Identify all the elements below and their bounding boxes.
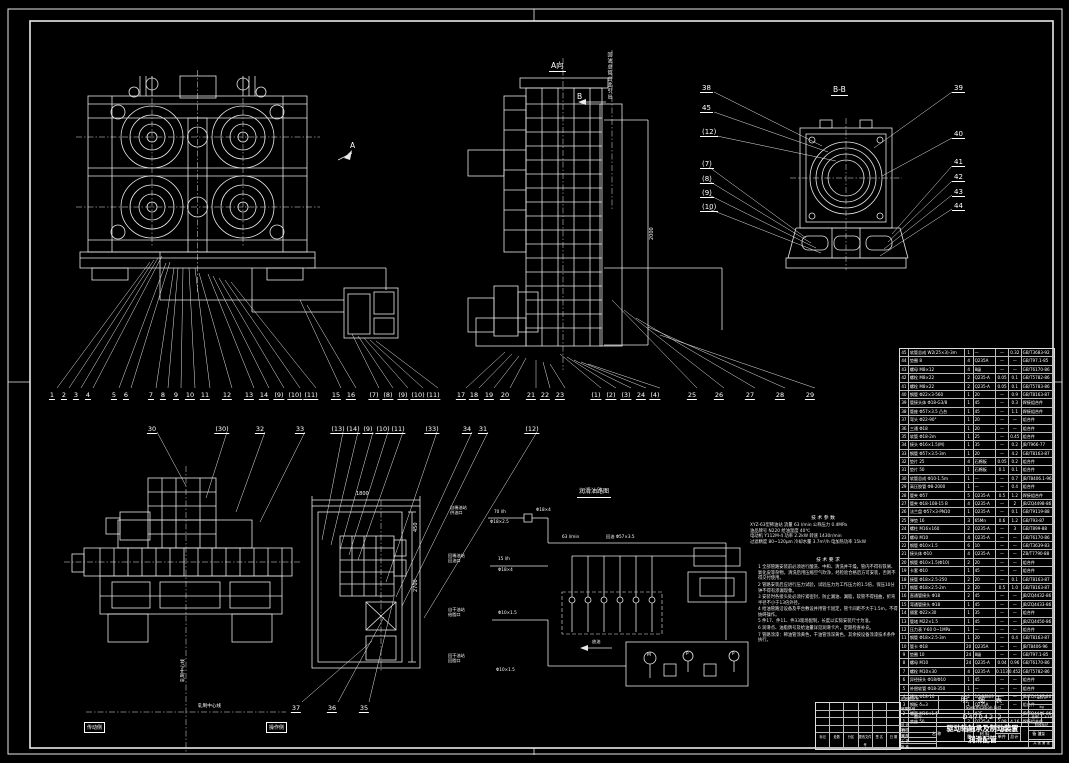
parts-cell: 5	[965, 492, 974, 499]
parts-cell: 10	[974, 542, 997, 549]
parts-cell: 37	[900, 416, 909, 423]
balloon-row1-24: (11)	[425, 391, 440, 400]
parts-cell: 2	[965, 592, 974, 599]
parts-cell: 26	[900, 508, 909, 515]
section-b-mark: B	[577, 93, 582, 101]
balloon-row2-4: 33	[295, 425, 305, 434]
parts-cell: —	[996, 567, 1009, 574]
parts-cell: 1	[965, 450, 974, 457]
pump-m-label: M	[647, 654, 651, 659]
balloon-row1-16: (10)	[287, 391, 302, 400]
parts-cell: 高压胶管 Φ8-2000	[909, 483, 965, 490]
tech-note-item: 7 管路涂漆：稀油管涂黄色，干油管涂深黄色，其余按设备涂漆技术条件执行。	[758, 633, 898, 644]
balloon-row1-21: (8)	[382, 391, 393, 400]
parts-cell: —	[996, 391, 1009, 398]
title-block: 设 计制 图审 核工 艺批 准 驱动轴轴承及制动装置 润滑配管 阶段标记 重量 …	[899, 722, 1055, 749]
parts-cell: GB/T3683-92	[1022, 349, 1054, 356]
parts-cell: 软管总成 Φ10-1.5m	[909, 475, 965, 482]
parts-cell: 43	[900, 366, 909, 373]
parts-cell: 45	[900, 349, 909, 356]
parts-cell: 0.4	[1009, 483, 1022, 490]
parts-cell: 钢管 Φ18×2.5-2m	[909, 584, 965, 591]
parts-cell: 20	[974, 576, 997, 583]
parts-cell: —	[1009, 601, 1022, 608]
parts-cell: 0.2	[1009, 458, 1022, 465]
parts-cell: 20	[974, 416, 997, 423]
parts-cell: Q235-A	[974, 383, 997, 390]
flow-label-f1: 70 l/h	[494, 510, 506, 515]
balloon-bottom-3: 35	[359, 704, 369, 713]
tech-params-title: 技 术 参 数	[750, 516, 896, 522]
parts-cell: 组合件	[1022, 559, 1054, 566]
balloon-row1-30: 22	[540, 391, 550, 400]
parts-row-7: 7螺栓 M10×304Q235-A0.1130.452GB/T5782-86	[900, 667, 1054, 675]
parts-cell: 钢管 Φ10×1.5	[909, 542, 965, 549]
parts-row-38: 38管座 Φ57×3.5 凸台145—1.1焊接组合件	[900, 407, 1054, 415]
parts-cell: 6	[965, 542, 974, 549]
balloon-bb_right-6: 44	[952, 202, 965, 211]
parts-cell: 12	[900, 626, 909, 633]
centerline-vertical-label: 轧制中心线	[181, 659, 186, 682]
tech-note-item: 1 全部管路安装前必须进行酸洗、中和、清洗并干燥，管内不得有铁屑、氧化皮等杂物，…	[758, 565, 898, 582]
parts-row-17: 17钢管 Φ18×2.5-2m2200.51.0GB/T8163-87	[900, 583, 1054, 591]
parts-cell: 13	[900, 618, 909, 625]
parts-cell: Q235A	[974, 643, 997, 650]
balloon-row1-20: (7)	[368, 391, 379, 400]
parts-cell: 接头 Φ16×1.5(M)	[909, 441, 965, 448]
parts-cell: —	[1009, 559, 1022, 566]
parts-cell: 4	[965, 534, 974, 541]
parts-row-35: 35软管 Φ18-2m125—0.45组合件	[900, 432, 1054, 440]
parts-cell: —	[996, 626, 1009, 633]
parts-cell: 焊接组合件	[1022, 408, 1054, 415]
balloon-bb_left-6: (9)	[700, 189, 714, 198]
parts-cell: 螺母 M8×12	[909, 366, 965, 373]
balloon-row1-37: 25	[687, 391, 697, 400]
parts-cell: 接头体 Φ10	[909, 550, 965, 557]
dim-tower-height: 2000	[650, 227, 656, 240]
parts-row-22: 22钢管 Φ10×1.5610——GB/T3639-83	[900, 541, 1054, 549]
parts-cell: 螺母 M10	[909, 534, 965, 541]
revision-label: 分区	[844, 733, 858, 749]
parts-cell: 17	[900, 584, 909, 591]
stage-weight-column: 阶段标记 重量 共 张 第 张	[1029, 722, 1054, 748]
parts-cell: —	[996, 550, 1009, 557]
parts-cell: 0.113	[996, 668, 1009, 675]
balloon-row1-33: (2)	[605, 391, 616, 400]
parts-row-34: 34接头 Φ16×1.5(M)135—0.2JB/T966-77	[900, 440, 1054, 448]
parts-cell: 组合件	[1022, 425, 1054, 432]
pipe-label-p3: 回油 Φ57×3.5	[606, 535, 635, 540]
parts-cell: 20	[974, 584, 997, 591]
parts-cell: 20	[974, 634, 997, 641]
parts-cell: —	[996, 651, 1009, 658]
parts-cell: 1	[965, 349, 974, 356]
parts-cell: 22	[900, 542, 909, 549]
view-a-title: A向	[549, 62, 566, 72]
parts-cell: JB/T8406.1-96	[1022, 475, 1054, 482]
parts-cell: 20	[974, 425, 997, 432]
revision-label: 处数	[830, 733, 844, 749]
parts-cell: 25	[974, 433, 997, 440]
balloon-row1-25: 17	[456, 391, 466, 400]
parts-cell: 20	[974, 391, 997, 398]
parts-cell: 1	[965, 626, 974, 633]
parts-row-13: 13管堵 M22×1.5145——JB/ZQ4450-86	[900, 617, 1054, 625]
parts-cell: 螺母 M10	[909, 659, 965, 666]
parts-cell: 32	[900, 458, 909, 465]
parts-cell: 45	[974, 399, 997, 406]
parts-cell: 1	[965, 685, 974, 692]
parts-cell: 20	[974, 450, 997, 457]
parts-cell: —	[996, 618, 1009, 625]
source-3-label: 自干油站给脂口	[448, 608, 465, 617]
balloon-row1-10: 10	[185, 391, 195, 400]
parts-cell: 垫圈 10	[909, 651, 965, 658]
balloon-row2-6: (14)	[345, 425, 360, 434]
tech-notes-title: 技 术 要 求	[758, 558, 898, 564]
parts-cell: —	[996, 676, 1009, 683]
parts-cell: GB/T97.1-85	[1022, 357, 1054, 364]
parts-cell: 软管 Φ18-2m	[909, 433, 965, 440]
balloon-row1-31: 23	[555, 391, 565, 400]
parts-cell: 20	[900, 559, 909, 566]
parts-cell: 25	[900, 517, 909, 524]
balloon-row1-14: 14	[259, 391, 269, 400]
parts-cell: GB/T5783-86	[1022, 383, 1054, 390]
pipe-label-p1: Φ18×2.5	[490, 520, 509, 525]
parts-cell: Q235-A	[974, 534, 997, 541]
parts-cell: 2	[965, 559, 974, 566]
parts-cell: 20	[965, 643, 974, 650]
balloon-row1-4: 4	[85, 391, 91, 400]
parts-row-16: 16直通管接头 Φ18245——JB/ZQ4432-86	[900, 591, 1054, 599]
parts-cell: 45	[974, 408, 997, 415]
parts-cell: 3	[965, 517, 974, 524]
parts-cell: 0.7	[1009, 475, 1022, 482]
balloon-row1-19: 16	[346, 391, 356, 400]
parts-cell: 管堵 M22×1.5	[909, 618, 965, 625]
parts-cell: GB/T8163-87	[1022, 584, 1054, 591]
parts-cell: 4	[965, 550, 974, 557]
drive-side-box: 传动侧	[84, 722, 105, 733]
parts-row-12: 12压力表 Y-60 0~1MPa1———组合件	[900, 625, 1054, 633]
balloon-bb_right-4: 42	[952, 173, 965, 182]
parts-cell: 16	[900, 592, 909, 599]
balloon-row1-13: 13	[244, 391, 254, 400]
tech-params-block: 技 术 参 数 XYZ-63型稀油站 流量 63 l/min 公称压力 0.4M…	[750, 516, 896, 546]
parts-row-30: 30软管总成 Φ10-1.5m1——0.7JB/T8406.1-96	[900, 474, 1054, 482]
revision-label: 更改文件号	[859, 733, 873, 749]
parts-cell: 45	[974, 567, 997, 574]
parts-cell: —	[1009, 651, 1022, 658]
parts-row-18: 18接管 Φ18×2.5-250220—0.1GB/T8163-87	[900, 575, 1054, 583]
parts-cell: 24	[965, 659, 974, 666]
parts-cell: 0.1	[996, 466, 1009, 473]
parts-cell: —	[1009, 626, 1022, 633]
parts-cell: —	[974, 626, 997, 633]
parts-cell: 压力表 Y-60 0~1MPa	[909, 626, 965, 633]
parts-cell: 24	[900, 525, 909, 532]
parts-cell: 组合件	[1022, 626, 1054, 633]
parts-cell: 1	[965, 601, 974, 608]
parts-cell: GB/T899-88	[1022, 525, 1054, 532]
parts-row-31: 31垫片 501石棉板0.10.1组合件	[900, 465, 1054, 473]
parts-row-9: 9垫圈 10248级——GB/T97.1-85	[900, 650, 1054, 658]
parts-cell: 钢管 Φ57×3.5-3m	[909, 450, 965, 457]
revision-row	[816, 710, 900, 718]
vertical-pipe-note: 回油总管由此引出	[606, 52, 612, 100]
parts-cell: 1.2	[1009, 517, 1022, 524]
dim-panel-height: 2700	[414, 579, 420, 592]
balloon-bb_left-7: (10)	[700, 203, 718, 212]
revision-row: 标记处数分区更改文件号签 名日 期	[816, 732, 900, 749]
parts-cell: 1	[965, 466, 974, 473]
parts-cell: 2	[965, 525, 974, 532]
parts-cell: 1	[965, 618, 974, 625]
parts-cell: 65Mn	[974, 517, 997, 524]
parts-cell: GB/T3639-83	[1022, 542, 1054, 549]
pipe-label-p5: Φ10×1.5	[498, 611, 517, 616]
parts-cell: 组合件	[1022, 433, 1054, 440]
parts-cell: —	[1009, 609, 1022, 616]
parts-cell: 石棉板	[974, 458, 997, 465]
parts-row-8: 8螺母 M1024Q235-A0.040.96GB/T6170-86	[900, 658, 1054, 666]
parts-cell: 9	[900, 651, 909, 658]
balloon-bb_left-4: (7)	[700, 160, 714, 169]
parts-cell: 45	[974, 601, 997, 608]
parts-cell: GB/T5782-86	[1022, 374, 1054, 381]
parts-cell: —	[1009, 534, 1022, 541]
parts-cell: Q235-A	[974, 525, 997, 532]
parts-cell: GB/T6170-86	[1022, 366, 1054, 373]
parts-cell: —	[1009, 550, 1022, 557]
balloon-row1-22: (9)	[397, 391, 408, 400]
parts-cell: 1	[965, 567, 974, 574]
balloon-bb_left-2: 45	[700, 104, 713, 113]
parts-cell: Q235-A	[974, 668, 997, 675]
parts-row-33: 33钢管 Φ57×3.5-3m120—4.2GB/T8163-87	[900, 449, 1054, 457]
parts-cell: 1	[965, 399, 974, 406]
parts-cell: GB/T93-87	[1022, 517, 1054, 524]
parts-cell: 1	[965, 676, 974, 683]
parts-cell: —	[1009, 592, 1022, 599]
parts-cell: JB/ZQ4433-86	[1022, 601, 1054, 608]
parts-cell: 45	[974, 592, 997, 599]
parts-cell: 2	[965, 374, 974, 381]
parts-cell: 24	[965, 651, 974, 658]
parts-cell: 0.05	[996, 374, 1009, 381]
tech-note-item: 4 给油管路沿设备及平台敷设并用管卡固定，管卡间距不大于1.5m，不得妨碍操作。	[758, 607, 898, 618]
parts-cell: 3	[1009, 525, 1022, 532]
parts-cell: 0.1	[1009, 466, 1022, 473]
parts-row-43: 43螺母 M8×1248级——GB/T6170-86	[900, 365, 1054, 373]
parts-cell: —	[996, 433, 1009, 440]
parts-cell: —	[1009, 425, 1022, 432]
balloon-row1-40: 28	[775, 391, 785, 400]
parts-cell: 4.2	[1009, 450, 1022, 457]
balloon-row2-7: (9)	[362, 425, 373, 434]
parts-cell: —	[996, 508, 1009, 515]
parts-cell: 27	[900, 500, 909, 507]
balloon-row1-41: 29	[805, 391, 815, 400]
parts-cell: 组合件	[1022, 416, 1054, 423]
parts-cell: 40	[900, 391, 909, 398]
source-1-label: 自稀油站供油口	[450, 506, 467, 515]
drawing-title: 驱动轴轴承及制动装置 润滑配管	[937, 722, 1029, 748]
parts-cell: GB/T8163-87	[1022, 391, 1054, 398]
balloon-bb_left-3: (12)	[700, 128, 718, 137]
revision-label: 日 期	[887, 733, 900, 749]
parts-cell: 弯通管接头 Φ18	[909, 601, 965, 608]
parts-cell: 10	[900, 643, 909, 650]
parts-cell: GB/T6170-86	[1022, 659, 1054, 666]
parts-cell: —	[996, 483, 1009, 490]
parts-cell: 4	[965, 668, 974, 675]
parts-cell: 42	[900, 374, 909, 381]
balloon-row1-39: 27	[745, 391, 755, 400]
schematic-title: 润滑油路图	[577, 489, 611, 498]
parts-cell: Q235-A	[974, 508, 997, 515]
pipe-label-p6: Φ10×1.5	[496, 668, 515, 673]
parts-cell: —	[996, 425, 1009, 432]
parts-cell: 法兰盘 Φ57×3-PN10	[909, 508, 965, 515]
parts-cell: 弹垫 16	[909, 517, 965, 524]
parts-cell: —	[974, 349, 997, 356]
parts-row-24: 24螺柱 M16×1602Q235-A—3GB/T899-88	[900, 524, 1054, 532]
parts-cell: 2	[965, 584, 974, 591]
balloon-row1-18: 15	[331, 391, 341, 400]
balloon-row1-12: 12	[222, 391, 232, 400]
parts-row-5: 5补偿软管 Φ18-3501———组合件	[900, 684, 1054, 692]
balloon-row2-13: (12)	[524, 425, 539, 434]
parts-row-25: 25弹垫 16365Mn0.61.2GB/T93-87	[900, 516, 1054, 524]
parts-cell: JB/T966-77	[1022, 441, 1054, 448]
parts-cell: 1	[965, 609, 974, 616]
parts-cell: JB/ZQ4450-86	[1022, 618, 1054, 625]
parts-cell: —	[1009, 676, 1022, 683]
parts-cell: 35	[974, 441, 997, 448]
parts-cell: 15	[900, 601, 909, 608]
tech-param-line: 过滤精度 80~120μm 冷却水量 3.7m³/h 电加热功率 15kW	[750, 540, 896, 546]
parts-row-27: 27管夹 Φ18-108-15 B4Q235-A—2JB/ZQ4498-86	[900, 499, 1054, 507]
parts-cell: 2	[1009, 500, 1022, 507]
parts-list-table: 45软管总成 W2(25×3)-3m1——0.32GB/T3683-9244垫圈…	[899, 348, 1055, 742]
balloon-row1-27: 19	[484, 391, 494, 400]
parts-cell: —	[996, 349, 1009, 356]
flow-label-f3: 15 l/h	[498, 557, 510, 562]
parts-cell: 三通 Φ18	[909, 425, 965, 432]
parts-cell: 0.1	[1009, 383, 1022, 390]
parts-cell: 弯头 Φ22-90°	[909, 416, 965, 423]
balloon-row1-8: 8	[160, 391, 166, 400]
tech-note-item: 6 润滑点、油脂牌号及给油量详见润滑卡片，定期检查补充。	[758, 626, 898, 632]
parts-cell: 焊接组合件	[1022, 492, 1054, 499]
balloon-bb_right-1: 39	[952, 84, 965, 93]
balloon-row1-5: 5	[111, 391, 117, 400]
parts-row-26: 26法兰盘 Φ57×3-PN101Q235-A—0.1GB/T9119-88	[900, 507, 1054, 515]
parts-cell: 36	[900, 425, 909, 432]
parts-cell: 0.4	[1009, 634, 1022, 641]
parts-cell: —	[996, 592, 1009, 599]
parts-cell: 补偿软管 Φ18-350	[909, 685, 965, 692]
parts-cell: 20	[974, 559, 997, 566]
parts-row-45: 45软管总成 W2(25×3)-3m1——0.32GB/T3683-92	[900, 349, 1054, 356]
revision-grid: 标记处数分区更改文件号签 名日 期	[815, 702, 901, 750]
parts-cell: 6	[900, 676, 909, 683]
parts-cell: 直通管接头 Φ18	[909, 592, 965, 599]
balloon-row2-10: (33)	[424, 425, 439, 434]
balloon-row1-6: 6	[123, 391, 129, 400]
parts-cell: GB/T8163-87	[1022, 450, 1054, 457]
parts-row-10: 10管卡 Φ1820Q235A——JB/T8406-96	[900, 642, 1054, 650]
parts-row-6: 6异径接头 Φ18/Φ10145——组合件	[900, 675, 1054, 683]
parts-cell: —	[1009, 366, 1022, 373]
parts-cell: Q235-A	[974, 492, 997, 499]
parts-cell: —	[996, 408, 1009, 415]
revision-row	[816, 725, 900, 733]
parts-row-29: 29高压胶管 Φ8-20001——0.4组合件	[900, 482, 1054, 490]
balloon-bottom-1: 37	[291, 704, 301, 713]
parts-cell: —	[996, 441, 1009, 448]
parts-cell: 钢管 Φ22×3-560	[909, 391, 965, 398]
parts-cell: —	[996, 500, 1009, 507]
parts-cell: 38	[900, 408, 909, 415]
parts-cell: 8	[900, 659, 909, 666]
parts-cell: 7	[900, 668, 909, 675]
parts-cell: 0.5	[996, 584, 1009, 591]
parts-cell: 垫片 50	[909, 466, 965, 473]
parts-cell: —	[996, 559, 1009, 566]
parts-cell: 1	[965, 391, 974, 398]
parts-cell: 0.45	[1009, 433, 1022, 440]
parts-cell: 8级	[974, 366, 997, 373]
parts-cell: 0.05	[996, 383, 1009, 390]
parts-cell: 组合件	[1022, 567, 1054, 574]
parts-cell: 33	[900, 450, 909, 457]
parts-cell: 管座 Φ57×3.5 凸台	[909, 408, 965, 415]
parts-cell: —	[996, 601, 1009, 608]
parts-cell: —	[1009, 357, 1022, 364]
flow-label-f2: 63 l/min	[562, 535, 579, 540]
parts-cell: 石棉板	[974, 466, 997, 473]
parts-cell: 组合件	[1022, 685, 1054, 692]
view-a-arrow-label: A	[350, 142, 355, 150]
parts-cell: GB/T9119-88	[1022, 508, 1054, 515]
balloon-row1-28: 20	[500, 391, 510, 400]
parts-cell: 隔套 Φ22×30	[909, 609, 965, 616]
balloon-row1-1: 1	[49, 391, 55, 400]
parts-cell: 4	[965, 458, 974, 465]
balloon-row1-35: 24	[636, 391, 646, 400]
balloon-row1-34: (3)	[620, 391, 631, 400]
balloon-bb_left-1: 38	[700, 84, 713, 93]
parts-cell: 8级	[974, 651, 997, 658]
parts-cell: 39	[900, 399, 909, 406]
cad-drawing-sheet: A向 B-B A B 回油总管由此引出 润滑油路图 1800 2700 450 …	[0, 0, 1069, 763]
parts-cell: GB/T5782-86	[1022, 668, 1054, 675]
parts-cell: —	[996, 576, 1009, 583]
parts-cell: 28	[900, 492, 909, 499]
parts-cell: 组合件	[1022, 483, 1054, 490]
parts-cell: —	[996, 685, 1009, 692]
spec-right-cell: 40THkg	[1029, 696, 1054, 713]
balloon-row1-7: 7	[148, 391, 154, 400]
spec-left-cell: 旧底图总号底图总号	[900, 696, 939, 713]
parts-cell: JB/ZQ4432-86	[1022, 592, 1054, 599]
section-bb-title: B-B	[831, 86, 848, 96]
balloon-row2-1: 30	[147, 425, 157, 434]
